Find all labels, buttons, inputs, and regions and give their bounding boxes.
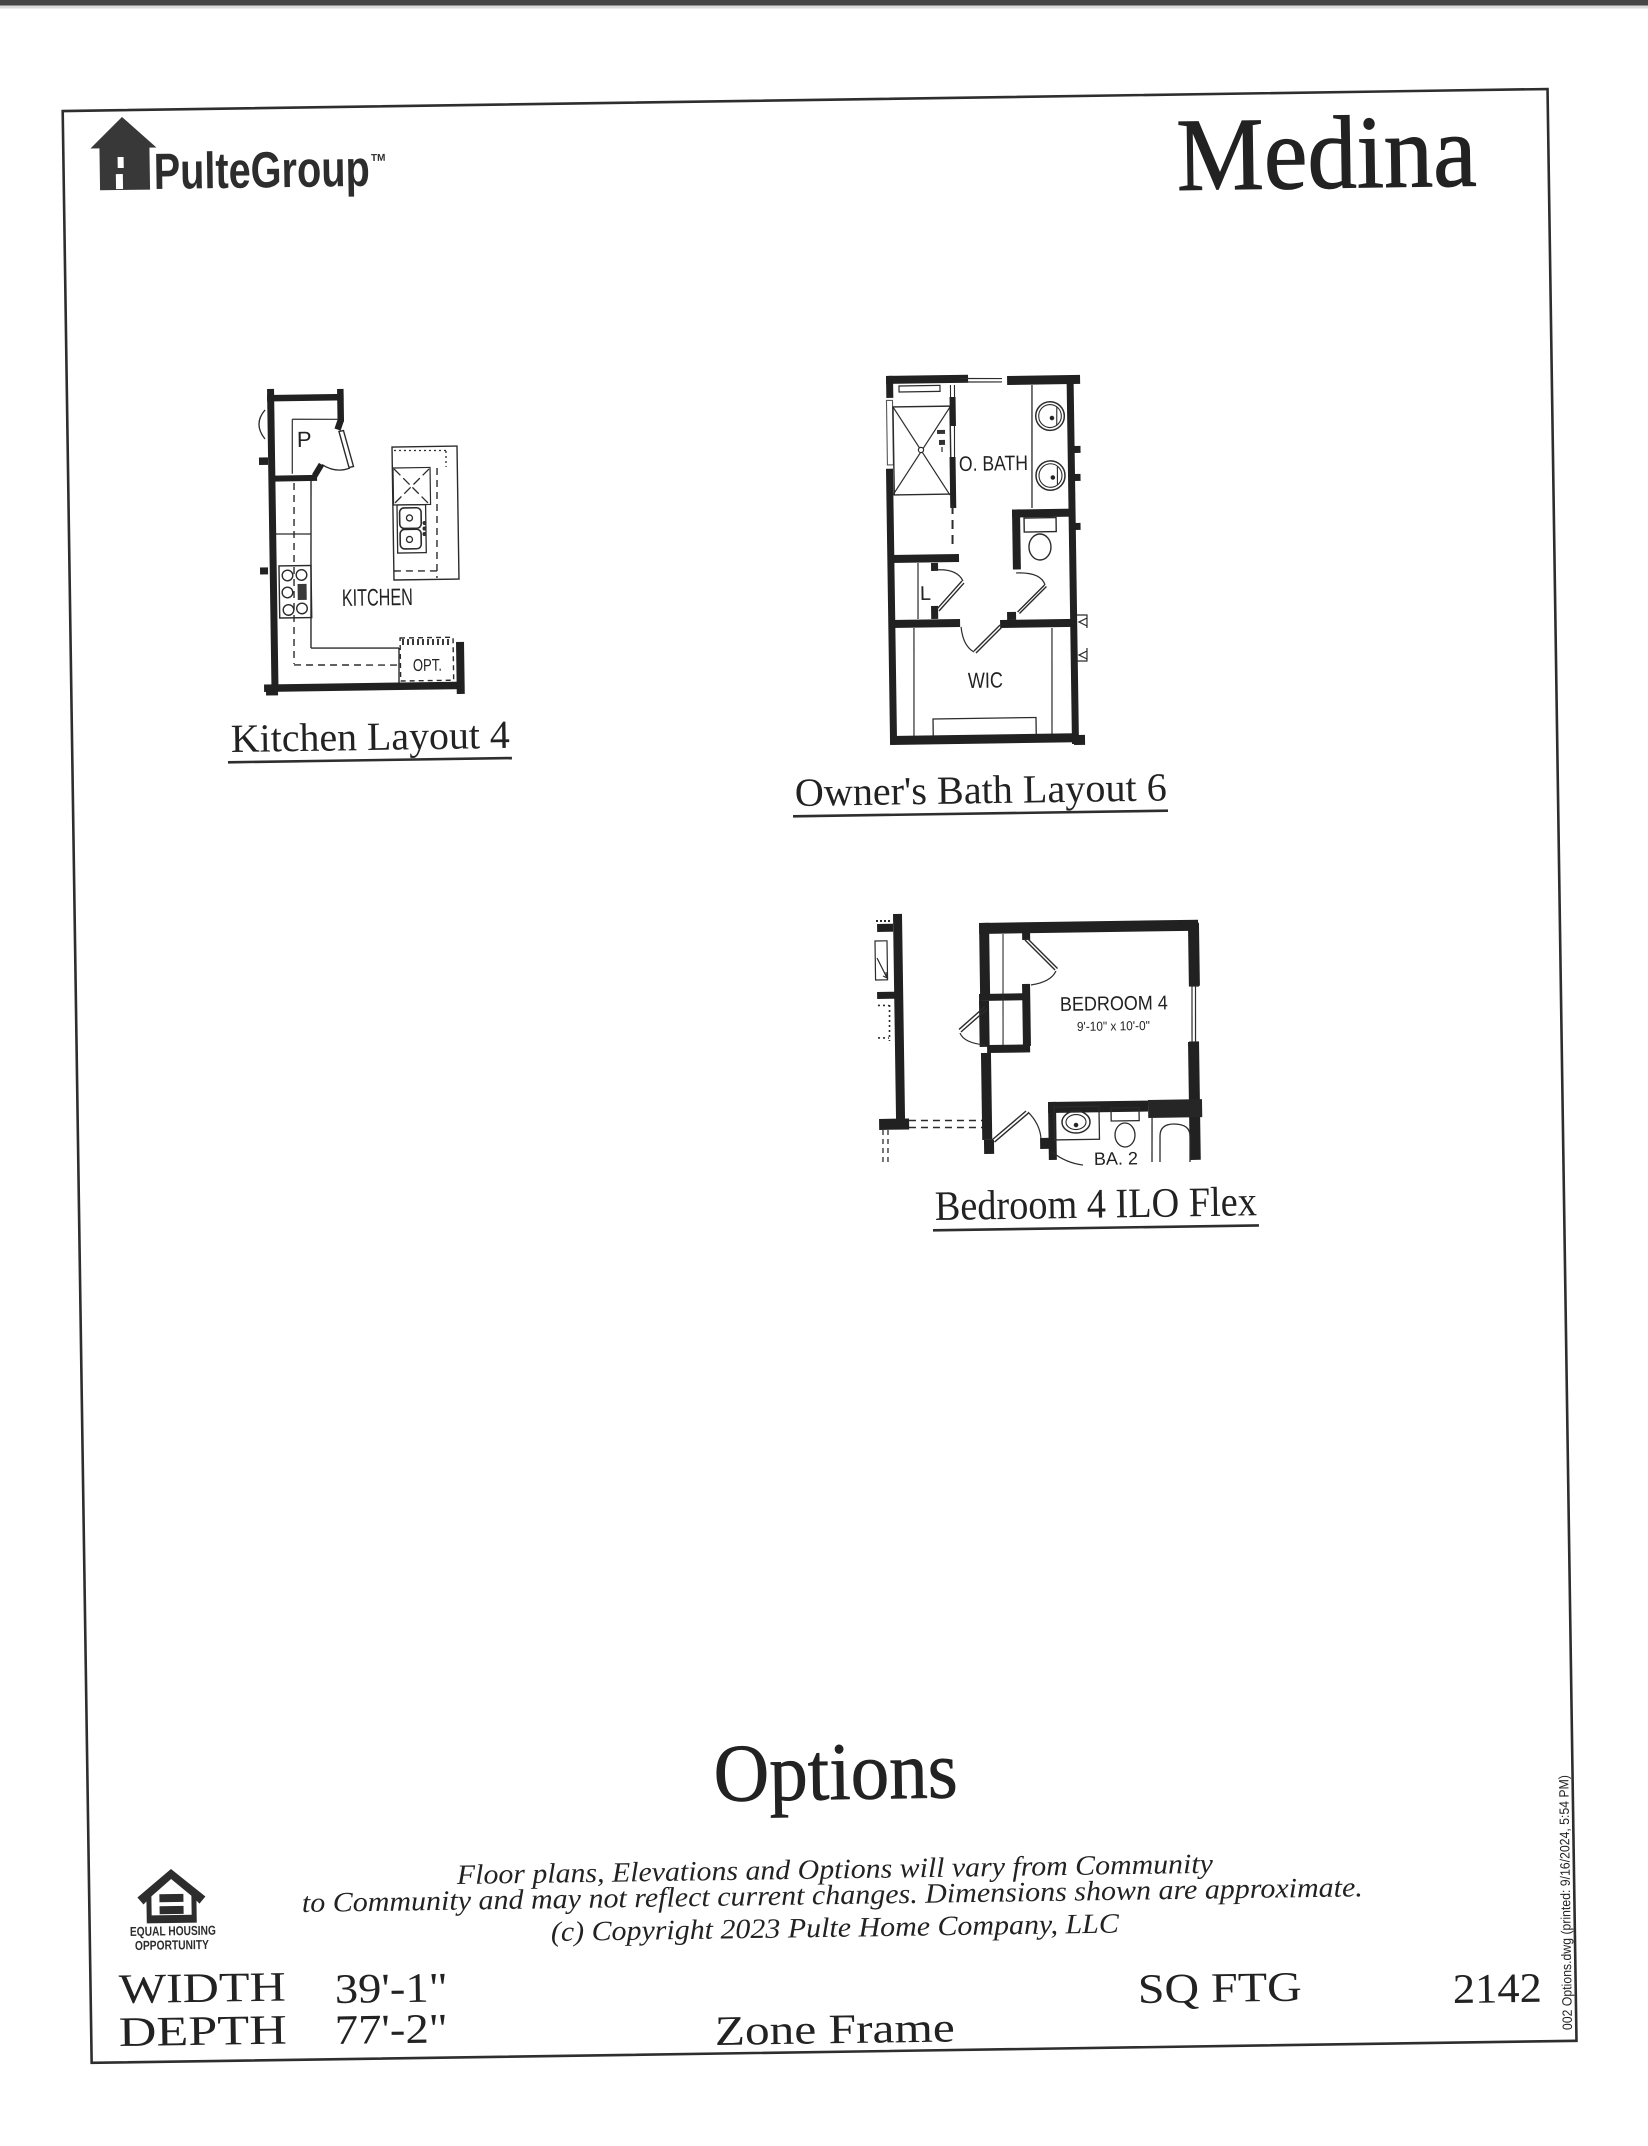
svg-text:KITCHEN: KITCHEN [342, 584, 413, 612]
svg-text:Medina: Medina [1176, 94, 1478, 213]
svg-text:(c) Copyright 2023 Pulte Home: (c) Copyright 2023 Pulte Home Company, L… [551, 1909, 1120, 1948]
svg-text:O. BATH: O. BATH [959, 452, 1028, 476]
svg-text:DEPTH: DEPTH [118, 2008, 287, 2056]
svg-text:Options: Options [713, 1724, 958, 1819]
svg-text:PulteGroup: PulteGroup [153, 140, 370, 200]
svg-text:SQ FTG: SQ FTG [1137, 1965, 1302, 2013]
svg-text:L: L [920, 583, 931, 605]
svg-text:Bedroom 4 ILO Flex: Bedroom 4 ILO Flex [935, 1179, 1258, 1230]
svg-text:77'-2": 77'-2" [334, 2006, 448, 2054]
svg-text:Owner's Bath Layout 6: Owner's Bath Layout 6 [794, 764, 1167, 815]
svg-text:Kitchen Layout 4: Kitchen Layout 4 [230, 712, 510, 761]
svg-text:WIC: WIC [968, 667, 1003, 693]
svg-text:9'-10" x 10'-0": 9'-10" x 10'-0" [1077, 1018, 1151, 1034]
svg-text:Zone Frame: Zone Frame [714, 2005, 955, 2055]
svg-text:OPPORTUNITY: OPPORTUNITY [135, 1937, 209, 1953]
svg-text:OPT.: OPT. [413, 656, 442, 675]
svg-text:P: P [297, 427, 312, 452]
svg-text:BA. 2: BA. 2 [1094, 1148, 1138, 1169]
svg-text:WIDTH: WIDTH [118, 1965, 286, 2013]
svg-text:TM: TM [371, 153, 386, 164]
svg-text:2142: 2142 [1452, 1966, 1542, 2013]
svg-text:BEDROOM 4: BEDROOM 4 [1060, 992, 1168, 1016]
